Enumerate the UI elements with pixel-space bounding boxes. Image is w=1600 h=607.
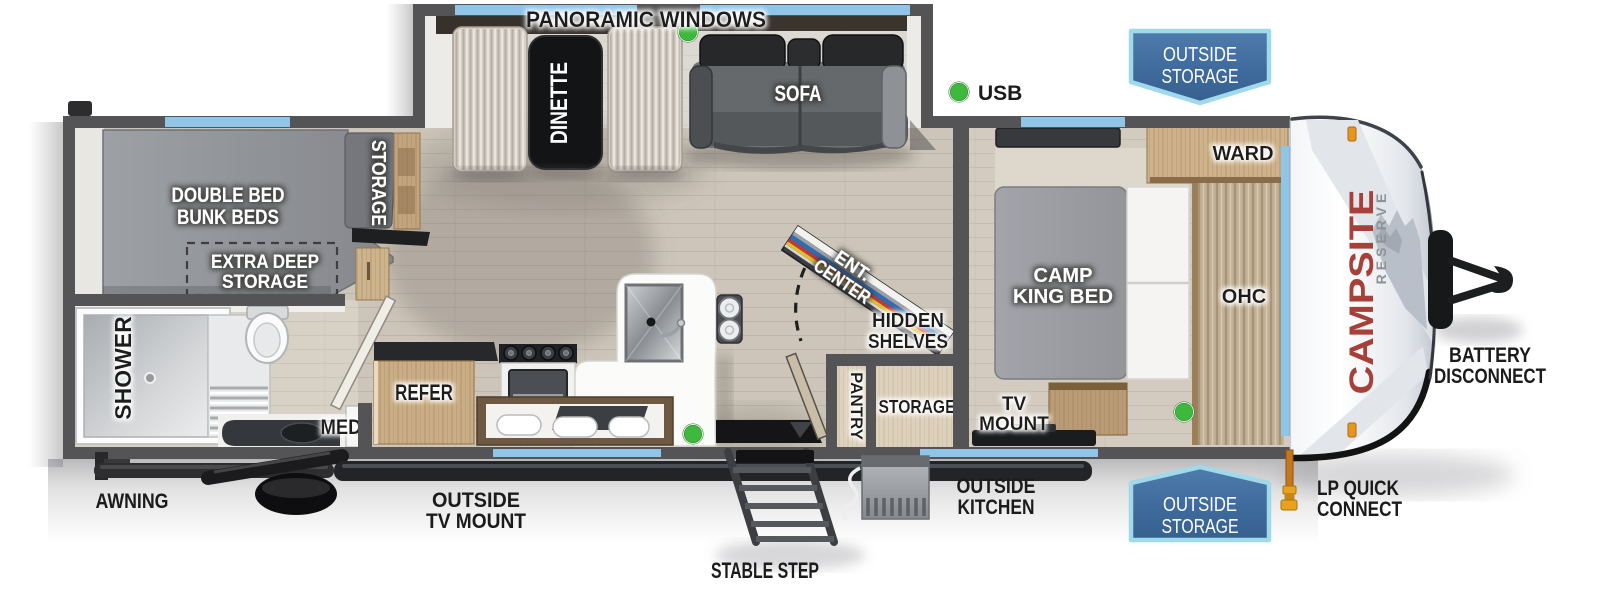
svg-text:REFER: REFER [395,380,453,405]
svg-text:CAMP: CAMP [1034,265,1093,287]
svg-text:OUTSIDE: OUTSIDE [1163,494,1237,516]
svg-text:AWNING: AWNING [96,490,169,513]
svg-text:OUTSIDE: OUTSIDE [1163,44,1237,66]
svg-text:EXTRA DEEP: EXTRA DEEP [211,252,319,273]
svg-text:SOFA: SOFA [775,81,822,106]
svg-text:STORAGE: STORAGE [879,397,956,417]
svg-text:MOUNT: MOUNT [979,414,1049,435]
svg-text:PANTRY: PANTRY [847,372,866,441]
svg-text:DINETTE: DINETTE [546,62,573,144]
svg-text:DISCONNECT: DISCONNECT [1434,365,1546,388]
svg-text:KITCHEN: KITCHEN [958,496,1035,519]
svg-text:HIDDEN: HIDDEN [872,310,944,332]
svg-text:OHC: OHC [1222,286,1266,308]
svg-text:DOUBLE BED: DOUBLE BED [172,184,285,207]
svg-text:SHELVES: SHELVES [868,331,948,353]
svg-text:WARD: WARD [1212,143,1273,165]
svg-text:TV MOUNT: TV MOUNT [426,510,526,533]
svg-text:STORAGE: STORAGE [1162,516,1239,538]
svg-text:SHOWER: SHOWER [110,316,136,420]
svg-text:OUTSIDE: OUTSIDE [432,489,520,512]
svg-text:STORAGE: STORAGE [367,140,389,226]
svg-text:LP QUICK: LP QUICK [1317,477,1399,500]
svg-text:STORAGE: STORAGE [222,272,308,293]
svg-text:TV: TV [1002,394,1027,415]
svg-text:MED: MED [321,416,362,439]
svg-text:OUTSIDE: OUTSIDE [957,475,1036,498]
svg-text:STABLE STEP: STABLE STEP [711,558,819,583]
svg-text:KING BED: KING BED [1013,286,1113,308]
svg-text:BATTERY: BATTERY [1449,344,1531,367]
svg-text:BUNK BEDS: BUNK BEDS [177,206,279,229]
svg-text:CONNECT: CONNECT [1317,498,1402,521]
svg-text:USB: USB [978,82,1022,105]
svg-text:RESERVE: RESERVE [1373,190,1389,285]
svg-text:STORAGE: STORAGE [1162,66,1239,88]
svg-text:PANORAMIC WINDOWS: PANORAMIC WINDOWS [526,7,766,32]
